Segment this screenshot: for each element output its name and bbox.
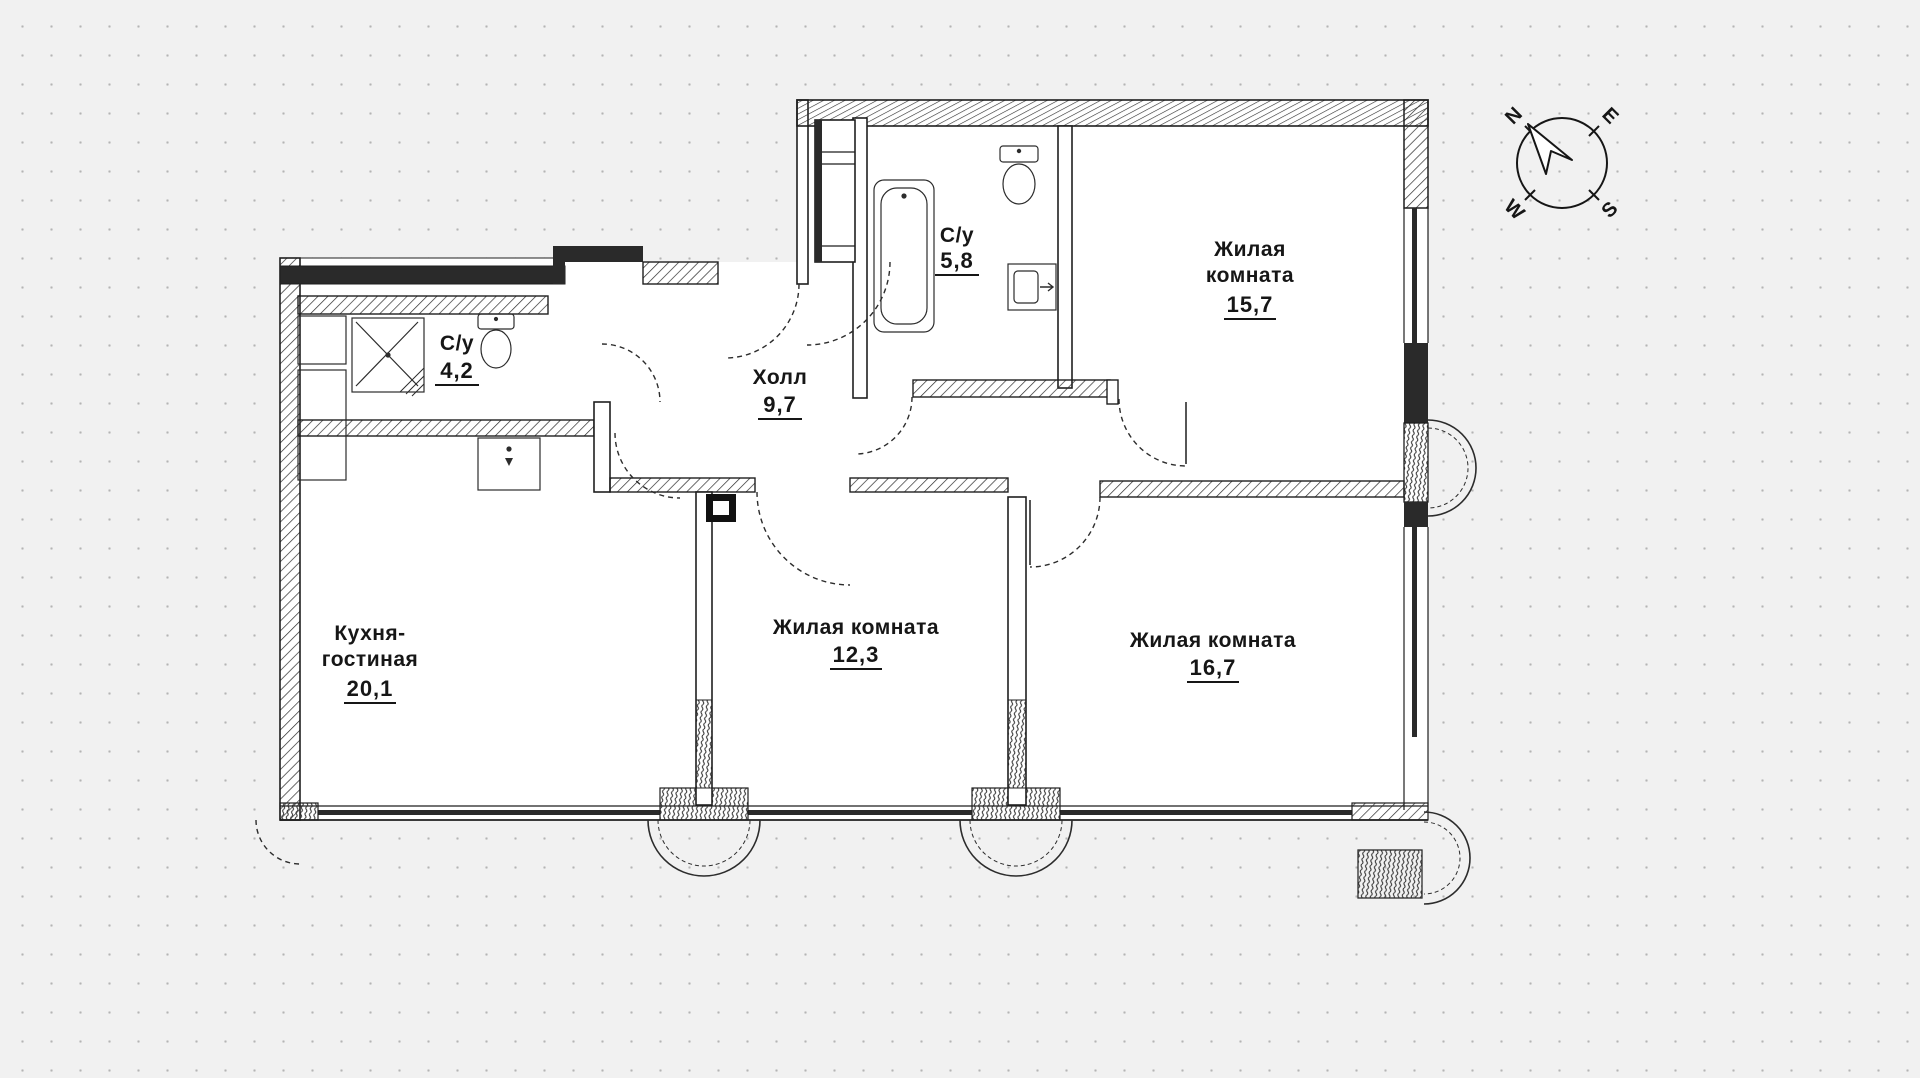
kitchen-name-2: гостиная <box>322 648 419 671</box>
compass-label-west: W <box>1500 196 1529 225</box>
window-bottom-1 <box>318 810 660 815</box>
floor-plan-canvas: Кухня- гостиная 20,1 Холл 9,7 С/у 4,2 С/… <box>0 0 1920 1078</box>
living3-name: Жилая комната <box>1129 629 1296 652</box>
balcony-mid-right-arc <box>1428 420 1476 516</box>
bath-small-area: 4,2 <box>440 358 474 383</box>
compass-arrow-icon <box>1528 124 1572 174</box>
balcony-bottom-1-inner <box>658 820 750 866</box>
wall-right-pier-top <box>1404 100 1428 208</box>
balcony-pier-mid <box>1404 423 1428 502</box>
pier-bottom-right <box>1352 803 1428 820</box>
compass-label-south: S <box>1598 198 1623 223</box>
wall-shaft-left <box>797 100 808 284</box>
wall-right-pier-mid1 <box>1404 343 1428 423</box>
kitchen-name-1: Кухня- <box>334 622 405 645</box>
balcony-bottom-1-arc <box>648 820 760 876</box>
balcony-bottom-2-arc <box>960 820 1072 876</box>
wall-door-jamb-157 <box>1107 380 1118 404</box>
wall-hall-south-left <box>610 478 755 492</box>
living1-name-2: комната <box>1206 264 1294 287</box>
living3-area: 16,7 <box>1190 655 1237 680</box>
hall-area: 9,7 <box>763 392 797 417</box>
wall-step <box>553 246 643 262</box>
kitchen-area: 20,1 <box>347 676 394 701</box>
floor-plan-svg: Кухня- гостиная 20,1 Холл 9,7 С/у 4,2 С/… <box>0 0 1920 1078</box>
balcony-corner-arc-inner <box>1424 822 1460 894</box>
wall-bath-big-right <box>1058 126 1072 388</box>
wall-step-post <box>553 246 565 284</box>
wall-bath-big-south <box>913 380 1110 397</box>
living2-area: 12,3 <box>833 642 880 667</box>
living1-area: 15,7 <box>1227 292 1274 317</box>
wall-kitchen-top <box>280 266 565 284</box>
label-bath-big: С/у 5,8 <box>935 224 979 275</box>
wall-entry-side <box>643 262 718 284</box>
bath-big-name: С/у <box>940 224 974 247</box>
bath-big-area: 5,8 <box>940 248 974 273</box>
balcony-corner-box <box>1358 850 1422 898</box>
compass-rose: N E S W <box>1500 103 1623 224</box>
pier-bottom-left <box>280 803 318 820</box>
wall-left <box>280 258 300 820</box>
wall-top-main <box>797 100 1428 126</box>
compass-label-north: N <box>1501 103 1527 129</box>
hall-name: Холл <box>753 366 808 389</box>
wall-bath-small-top <box>298 296 548 314</box>
window-bottom-3 <box>1060 810 1352 815</box>
wall-157-south <box>1100 481 1404 497</box>
balcony-corner-arc <box>1424 812 1470 904</box>
wall-partition-2-hatch <box>1008 700 1026 788</box>
wall-bath-small-bottom <box>298 420 594 436</box>
living1-name-1: Жилая <box>1213 238 1286 261</box>
door-corner-left-arc <box>256 820 300 864</box>
balcony-bottom-2-inner <box>970 820 1062 866</box>
electrical-panel-icon <box>706 494 736 522</box>
label-bath-small: С/у 4,2 <box>435 332 479 385</box>
wall-partition-1-hatch <box>696 700 712 788</box>
wall-hall-south-right <box>850 478 1008 492</box>
living2-name: Жилая комната <box>772 616 939 639</box>
compass-label-east: E <box>1598 104 1623 129</box>
ventilation-shaft <box>815 120 855 262</box>
wall-right-pier-mid2 <box>1404 502 1428 527</box>
balcony-mid-right-arc-inner <box>1428 428 1468 508</box>
wall-corridor-pier <box>594 402 610 492</box>
bath-small-name: С/у <box>440 332 474 355</box>
window-bottom-2 <box>748 810 972 815</box>
